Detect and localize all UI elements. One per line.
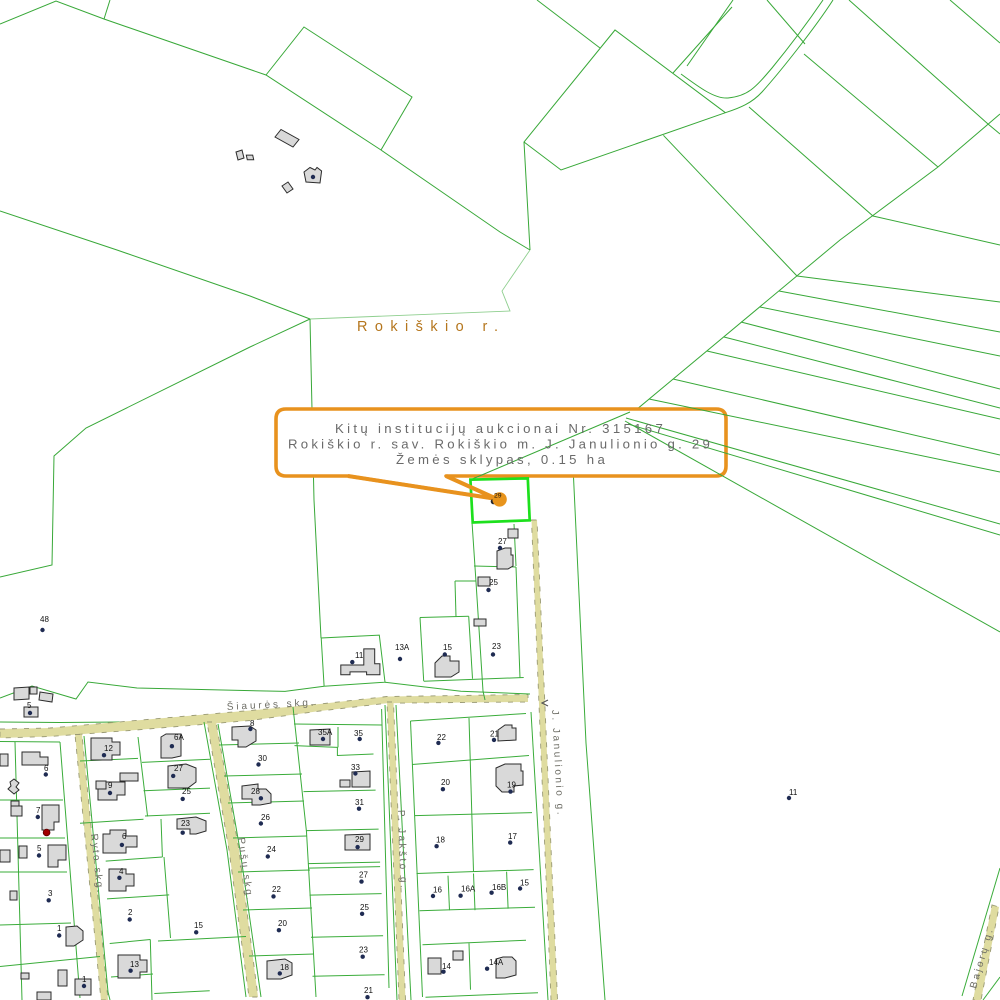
svg-text:33: 33	[351, 763, 360, 772]
svg-text:6: 6	[44, 764, 49, 773]
svg-text:35A: 35A	[318, 728, 333, 737]
svg-text:31: 31	[355, 798, 364, 807]
svg-text:27: 27	[174, 764, 183, 773]
svg-text:3: 3	[48, 889, 53, 898]
svg-text:25: 25	[182, 787, 191, 796]
svg-text:20: 20	[441, 778, 450, 787]
svg-text:Kitų institucijų aukcionai Nr.: Kitų institucijų aukcionai Nr. 315167	[335, 421, 665, 436]
svg-text:20: 20	[278, 919, 287, 928]
svg-text:22: 22	[437, 733, 446, 742]
svg-text:8: 8	[250, 719, 255, 728]
svg-text:12: 12	[104, 744, 113, 753]
svg-text:29: 29	[494, 493, 502, 500]
svg-text:14A: 14A	[489, 958, 504, 967]
svg-text:15: 15	[443, 643, 452, 652]
svg-text:1: 1	[57, 924, 62, 933]
svg-text:15: 15	[520, 879, 529, 888]
svg-text:Žemės sklypas, 0.15 ha: Žemės sklypas, 0.15 ha	[396, 452, 607, 467]
svg-text:11: 11	[789, 788, 798, 797]
svg-text:13A: 13A	[395, 643, 410, 652]
svg-text:18: 18	[436, 836, 445, 845]
svg-text:4: 4	[119, 867, 124, 876]
svg-text:23: 23	[181, 819, 190, 828]
svg-text:27: 27	[359, 871, 368, 880]
svg-text:2: 2	[128, 908, 133, 917]
svg-text:15: 15	[194, 921, 203, 930]
svg-text:16A: 16A	[461, 885, 476, 894]
svg-text:13: 13	[130, 960, 139, 969]
svg-text:21: 21	[364, 986, 373, 995]
svg-text:6: 6	[122, 832, 127, 841]
svg-text:48: 48	[40, 615, 49, 624]
svg-text:21: 21	[490, 730, 499, 739]
svg-text:16: 16	[433, 886, 442, 895]
svg-text:25: 25	[489, 578, 498, 587]
svg-text:14: 14	[442, 962, 451, 971]
svg-text:17: 17	[508, 832, 517, 841]
svg-text:24: 24	[267, 845, 276, 854]
svg-text:5: 5	[37, 844, 42, 853]
svg-text:27: 27	[498, 537, 507, 546]
svg-text:7: 7	[36, 806, 41, 815]
svg-text:16B: 16B	[492, 883, 506, 892]
svg-text:5: 5	[27, 701, 32, 710]
svg-text:29: 29	[355, 835, 364, 844]
svg-text:26: 26	[261, 813, 270, 822]
svg-text:19: 19	[507, 781, 516, 790]
svg-text:1: 1	[82, 975, 87, 984]
svg-text:18: 18	[280, 963, 289, 972]
svg-text:28: 28	[251, 787, 260, 796]
svg-text:9: 9	[108, 781, 113, 790]
svg-text:11: 11	[355, 651, 364, 660]
svg-text:30: 30	[258, 754, 267, 763]
svg-text:Rokiškio r. sav. Rokiškio m. J: Rokiškio r. sav. Rokiškio m. J. Janulion…	[288, 437, 712, 452]
svg-text:22: 22	[272, 885, 281, 894]
svg-text:25: 25	[360, 903, 369, 912]
svg-text:35: 35	[354, 729, 363, 738]
svg-text:23: 23	[492, 642, 501, 651]
svg-text:6A: 6A	[174, 733, 184, 742]
svg-text:23: 23	[359, 946, 368, 955]
